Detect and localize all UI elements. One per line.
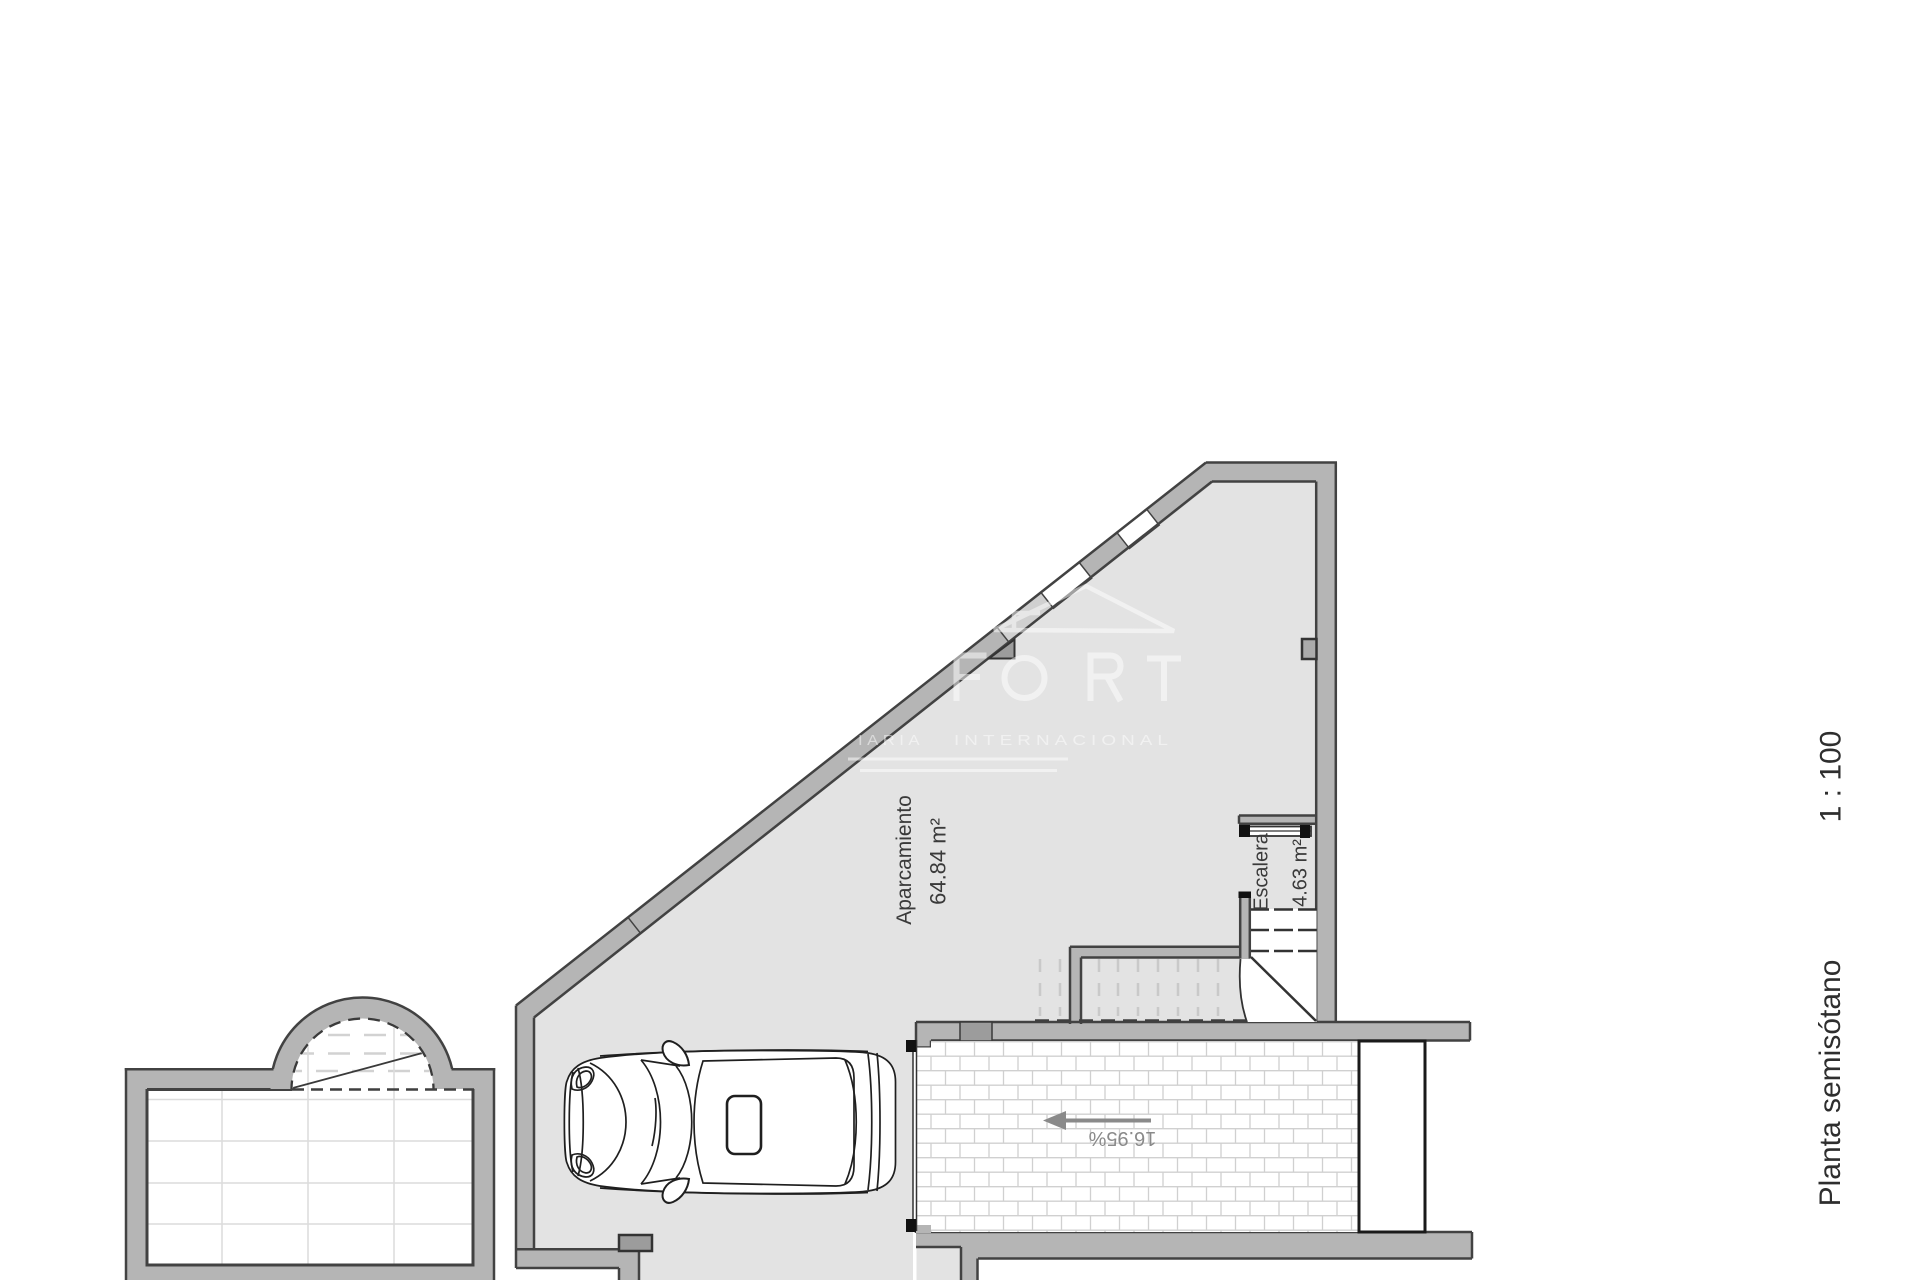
svg-text:IARIA: IARIA xyxy=(858,732,924,749)
svg-text:Escalera: Escalera xyxy=(1251,832,1273,911)
svg-text:Planta semisótano: Planta semisótano xyxy=(1814,960,1847,1207)
svg-text:INTERNACIONAL: INTERNACIONAL xyxy=(954,732,1173,749)
svg-text:16.95%: 16.95% xyxy=(1088,1127,1156,1149)
svg-text:Aparcamiento: Aparcamiento xyxy=(893,795,916,925)
svg-text:64.84 m²: 64.84 m² xyxy=(926,818,951,905)
svg-text:1 : 100: 1 : 100 xyxy=(1815,731,1848,823)
svg-text:4.63 m²: 4.63 m² xyxy=(1290,839,1312,907)
